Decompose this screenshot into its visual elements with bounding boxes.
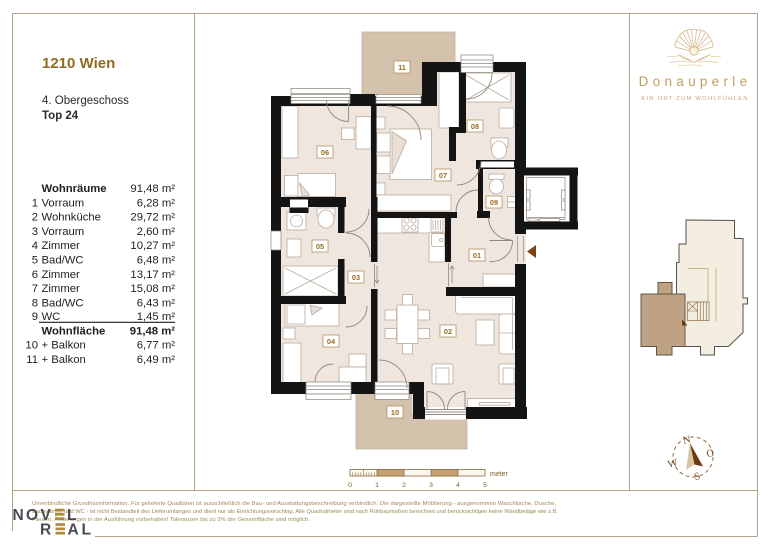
svg-text:13,17 m²: 13,17 m² <box>130 269 175 281</box>
svg-text:4. Obergeschoss: 4. Obergeschoss <box>42 95 129 107</box>
svg-text:3: 3 <box>32 226 38 238</box>
svg-text:A: A <box>68 522 79 539</box>
svg-text:91,48 m²: 91,48 m² <box>130 325 175 337</box>
svg-text:R: R <box>40 522 51 539</box>
svg-text:6: 6 <box>32 269 38 281</box>
svg-text:Vorraum: Vorraum <box>42 197 85 209</box>
svg-text:15,08 m²: 15,08 m² <box>130 283 175 295</box>
svg-text:10,27 m²: 10,27 m² <box>130 240 175 252</box>
svg-text:02: 02 <box>444 327 452 336</box>
svg-text:2: 2 <box>402 482 406 489</box>
svg-text:Wohnfläche: Wohnfläche <box>42 325 106 337</box>
svg-text:91,48 m²: 91,48 m² <box>130 183 175 195</box>
svg-text:09: 09 <box>490 198 498 207</box>
svg-text:Unverbindliche Grundrissinform: Unverbindliche Grundrissinformation. Für… <box>32 501 556 507</box>
svg-text:EIN ORT ZUM WOHLFÜHLEN: EIN ORT ZUM WOHLFÜHLEN <box>641 95 748 102</box>
svg-text:0: 0 <box>348 482 352 489</box>
svg-text:meter: meter <box>490 471 509 478</box>
svg-text:1: 1 <box>375 482 379 489</box>
svg-text:O: O <box>26 507 38 524</box>
svg-text:06: 06 <box>321 148 329 157</box>
svg-text:Badewanne und WC - ist nicht B: Badewanne und WC - ist nicht Bestandteil… <box>32 509 558 515</box>
svg-text:Wohnräume: Wohnräume <box>42 183 107 195</box>
svg-text:6,77 m²: 6,77 m² <box>137 340 176 352</box>
svg-text:10: 10 <box>25 340 38 352</box>
svg-text:7: 7 <box>32 283 38 295</box>
svg-text:N: N <box>13 507 24 524</box>
svg-text:1210 Wien: 1210 Wien <box>42 55 115 72</box>
svg-text:6,43 m²: 6,43 m² <box>137 297 176 309</box>
svg-text:07: 07 <box>439 171 447 180</box>
svg-text:Vorraum: Vorraum <box>42 226 85 238</box>
svg-text:Wohnküche: Wohnküche <box>42 212 101 224</box>
svg-text:2: 2 <box>32 212 38 224</box>
svg-text:03: 03 <box>352 273 360 282</box>
svg-text:1: 1 <box>32 197 38 209</box>
svg-text:+ Balkon: + Balkon <box>42 340 86 352</box>
svg-text:Zimmer: Zimmer <box>42 269 81 281</box>
svg-text:08: 08 <box>471 122 479 131</box>
svg-text:8: 8 <box>32 297 38 309</box>
svg-text:WC: WC <box>42 311 61 323</box>
svg-text:Zimmer: Zimmer <box>42 283 81 295</box>
svg-text:+ Balkon: + Balkon <box>42 354 86 366</box>
svg-text:6,48 m²: 6,48 m² <box>137 255 176 267</box>
svg-text:2,60 m²: 2,60 m² <box>137 226 176 238</box>
svg-text:11: 11 <box>398 63 406 72</box>
svg-text:4: 4 <box>456 482 460 489</box>
svg-text:5: 5 <box>32 255 38 267</box>
svg-text:Bad/WC: Bad/WC <box>42 297 84 309</box>
svg-text:11: 11 <box>26 354 38 366</box>
svg-text:04: 04 <box>327 337 336 346</box>
svg-text:4: 4 <box>32 240 38 252</box>
svg-text:L: L <box>82 522 91 539</box>
svg-text:Donauperle: Donauperle <box>639 74 752 89</box>
svg-text:6,28 m²: 6,28 m² <box>137 197 176 209</box>
svg-text:6,49 m²: 6,49 m² <box>137 354 176 366</box>
svg-text:Bad/WC: Bad/WC <box>42 255 84 267</box>
svg-text:3: 3 <box>429 482 433 489</box>
svg-text:5: 5 <box>483 482 487 489</box>
svg-text:05: 05 <box>316 242 324 251</box>
svg-text:1,45 m²: 1,45 m² <box>137 311 176 323</box>
svg-text:Top 24: Top 24 <box>42 110 79 122</box>
svg-text:Zimmer: Zimmer <box>42 240 81 252</box>
svg-text:01: 01 <box>473 251 481 260</box>
svg-text:9: 9 <box>32 311 38 323</box>
svg-text:29,72 m²: 29,72 m² <box>130 212 175 224</box>
svg-text:10: 10 <box>391 408 399 417</box>
